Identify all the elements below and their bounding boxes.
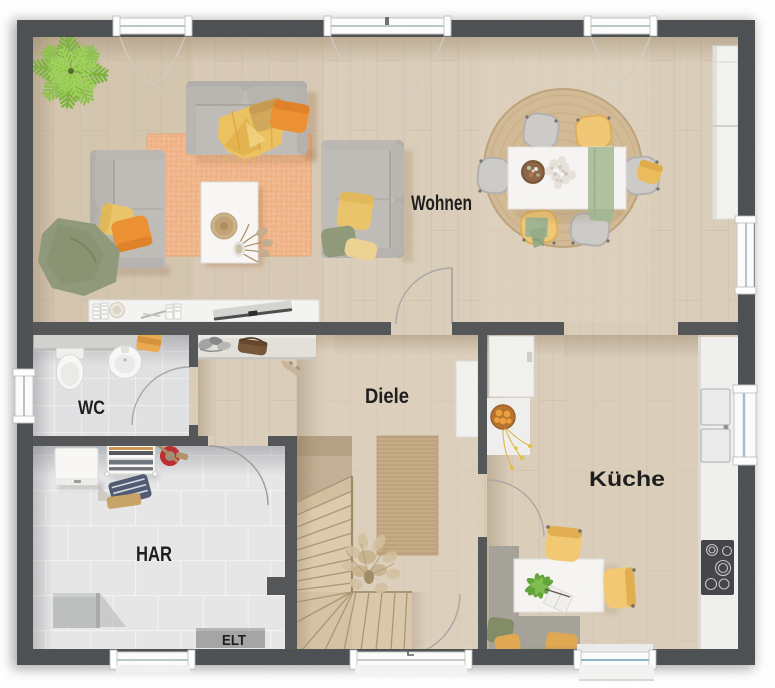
- svg-text:Wohnen: Wohnen: [411, 191, 472, 215]
- svg-text:WC: WC: [78, 397, 105, 419]
- svg-text:ELT: ELT: [222, 632, 246, 649]
- svg-text:HAR: HAR: [136, 542, 172, 566]
- svg-text:Diele: Diele: [365, 385, 409, 408]
- svg-text:Küche: Küche: [589, 467, 665, 491]
